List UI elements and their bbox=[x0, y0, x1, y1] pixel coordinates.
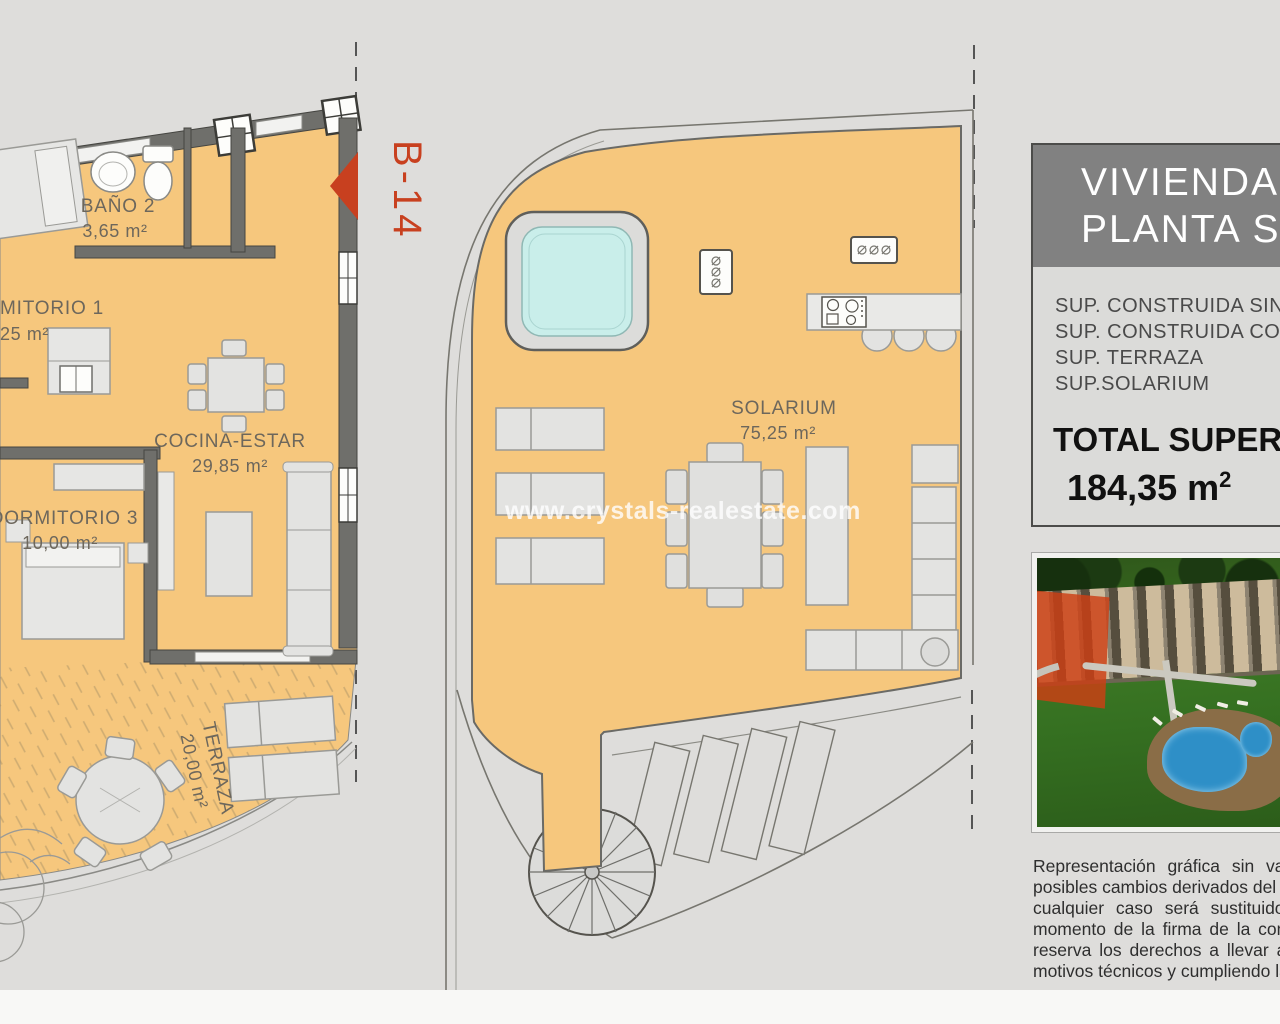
disclaimer-line: momento de la firma de la compr bbox=[1033, 919, 1280, 940]
svg-text:MITORIO 1: MITORIO 1 bbox=[0, 298, 104, 319]
sofa bbox=[283, 462, 333, 656]
svg-text:3,65 m²: 3,65 m² bbox=[82, 221, 147, 241]
info-panel-header: VIVIENDA PLANTA SEG bbox=[1033, 145, 1280, 267]
svg-text:DORMITORIO 3: DORMITORIO 3 bbox=[0, 508, 138, 529]
surface-row: SUP. TERRAZA bbox=[1055, 345, 1280, 371]
toilet bbox=[143, 146, 173, 200]
svg-text:10,00 m²: 10,00 m² bbox=[22, 533, 98, 553]
svg-text:29,85 m²: 29,85 m² bbox=[192, 456, 268, 476]
info-panel: VIVIENDA PLANTA SEG SUP. CONSTRUIDA SIN … bbox=[1031, 143, 1280, 527]
svg-text:25 m²: 25 m² bbox=[0, 324, 49, 344]
surface-row: SUP. CONSTRUIDA CON bbox=[1055, 319, 1280, 345]
tv-sideboard bbox=[158, 472, 174, 590]
coffee-table bbox=[206, 512, 252, 596]
pergola-slats bbox=[626, 722, 835, 866]
surface-row: SUP. CONSTRUIDA SIN Z bbox=[1055, 293, 1280, 319]
vent-box bbox=[851, 237, 897, 263]
pool-round-section bbox=[1240, 722, 1273, 757]
pool-lounger bbox=[1217, 702, 1229, 709]
planter-bench bbox=[806, 447, 848, 605]
watermark: www.crystals-realestate.com bbox=[505, 497, 805, 526]
svg-text:75,25 m²: 75,25 m² bbox=[740, 423, 816, 443]
bottom-margin-strip bbox=[0, 990, 1280, 1024]
solarium-floorplan: SOLARIUM 75,25 m² bbox=[430, 30, 1000, 1024]
jacuzzi bbox=[506, 212, 648, 350]
aerial-photo bbox=[1031, 552, 1280, 833]
svg-text:B-14: B-14 bbox=[385, 140, 429, 241]
bathroom-sink bbox=[91, 152, 135, 192]
wardrobe bbox=[48, 328, 110, 394]
disclaimer-text: Representación gráfica sin val posibles … bbox=[1033, 856, 1280, 982]
panel-title-line2: PLANTA SEG bbox=[1081, 206, 1280, 253]
total-surface-value: 184,35 m2 bbox=[1033, 459, 1280, 509]
solarium-sun-loungers bbox=[496, 408, 604, 584]
disclaimer-line: posibles cambios derivados del pr bbox=[1033, 877, 1280, 898]
pool-lounger bbox=[1237, 700, 1249, 706]
main-floorplan: BAÑO 2 3,65 m² MITORIO 1 25 m² COCINA-ES… bbox=[0, 0, 460, 1024]
vent-box bbox=[700, 250, 732, 294]
aerial-photo-image bbox=[1037, 558, 1280, 827]
disclaimer-line: cualquier caso será sustituido bbox=[1033, 898, 1280, 919]
surface-rows: SUP. CONSTRUIDA SIN Z SUP. CONSTRUIDA CO… bbox=[1033, 267, 1280, 397]
surface-row: SUP.SOLARIUM bbox=[1055, 371, 1280, 397]
svg-text:BAÑO 2: BAÑO 2 bbox=[81, 195, 156, 217]
pool bbox=[1162, 727, 1247, 792]
svg-text:COCINA-ESTAR: COCINA-ESTAR bbox=[154, 431, 306, 452]
total-surface-label: TOTAL SUPER bbox=[1033, 397, 1280, 459]
disclaimer-line: Representación gráfica sin val bbox=[1033, 856, 1280, 877]
svg-text:SOLARIUM: SOLARIUM bbox=[731, 398, 837, 419]
disclaimer-line: motivos técnicos y cumpliendo la bbox=[1033, 961, 1280, 982]
disclaimer-line: reserva los derechos a llevar a bbox=[1033, 940, 1280, 961]
bed-dormitorio1 bbox=[0, 139, 88, 243]
panel-title-line1: VIVIENDA bbox=[1081, 159, 1280, 206]
